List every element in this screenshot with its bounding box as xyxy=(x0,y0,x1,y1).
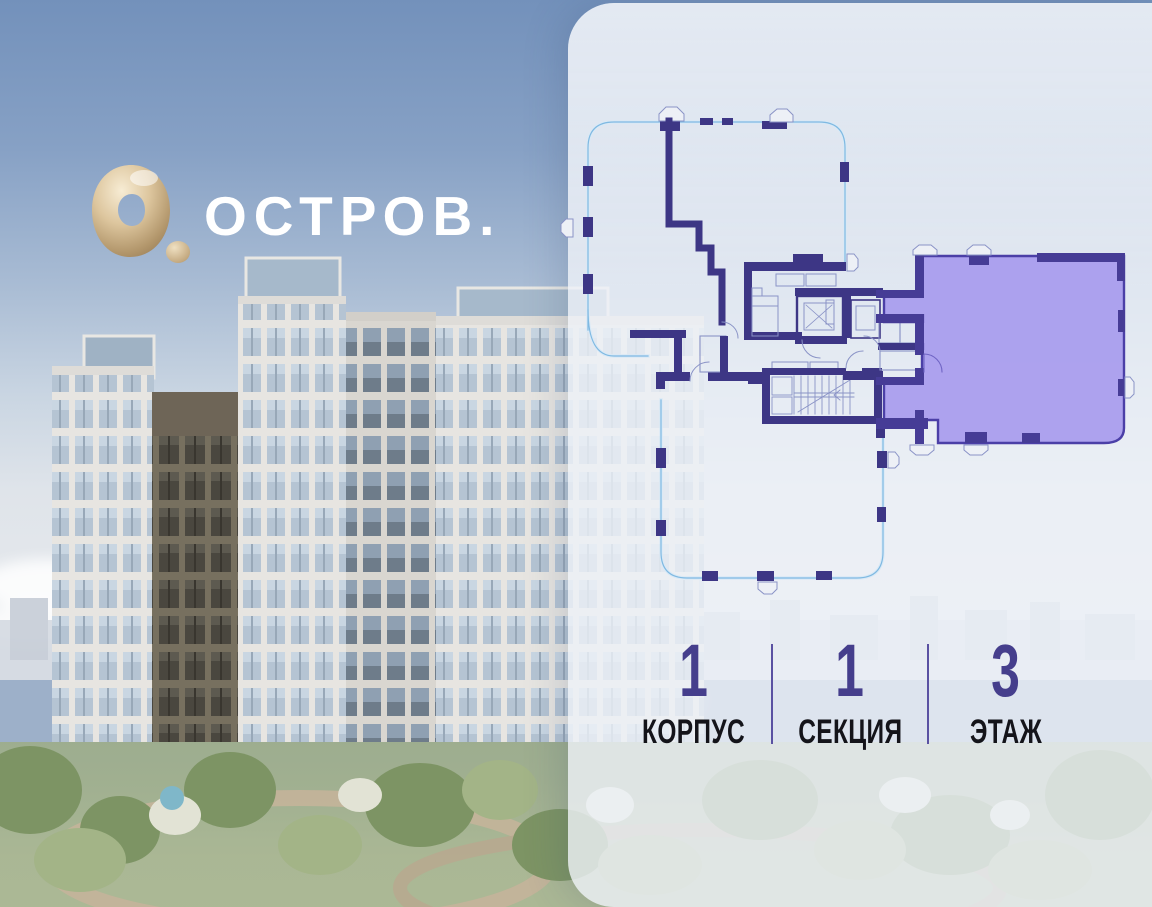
section-number: 1 xyxy=(836,638,865,703)
info-floor: 3 ЭТАЖ xyxy=(929,638,1083,756)
section-label: СЕКЦИЯ xyxy=(798,713,902,752)
building-number: 1 xyxy=(680,638,709,703)
apartment-panel xyxy=(568,3,1152,907)
brand-logo[interactable]: ОСТРОВ. xyxy=(88,158,508,270)
playground xyxy=(160,786,184,810)
floor-label: ЭТАЖ xyxy=(970,713,1042,752)
info-building: 1 КОРПУС xyxy=(617,638,771,756)
building-label: КОРПУС xyxy=(643,713,746,752)
floor-number: 3 xyxy=(992,638,1021,703)
apartment-info-bar: 1 КОРПУС 1 СЕКЦИЯ 3 ЭТАЖ xyxy=(617,638,1083,756)
brand-name: ОСТРОВ. xyxy=(204,184,501,248)
page: ОСТРОВ. 1 КОРПУС 1 СЕКЦИЯ 3 ЭТАЖ xyxy=(0,0,1152,907)
gold-ring-icon xyxy=(88,158,200,270)
info-section: 1 СЕКЦИЯ xyxy=(773,638,927,756)
